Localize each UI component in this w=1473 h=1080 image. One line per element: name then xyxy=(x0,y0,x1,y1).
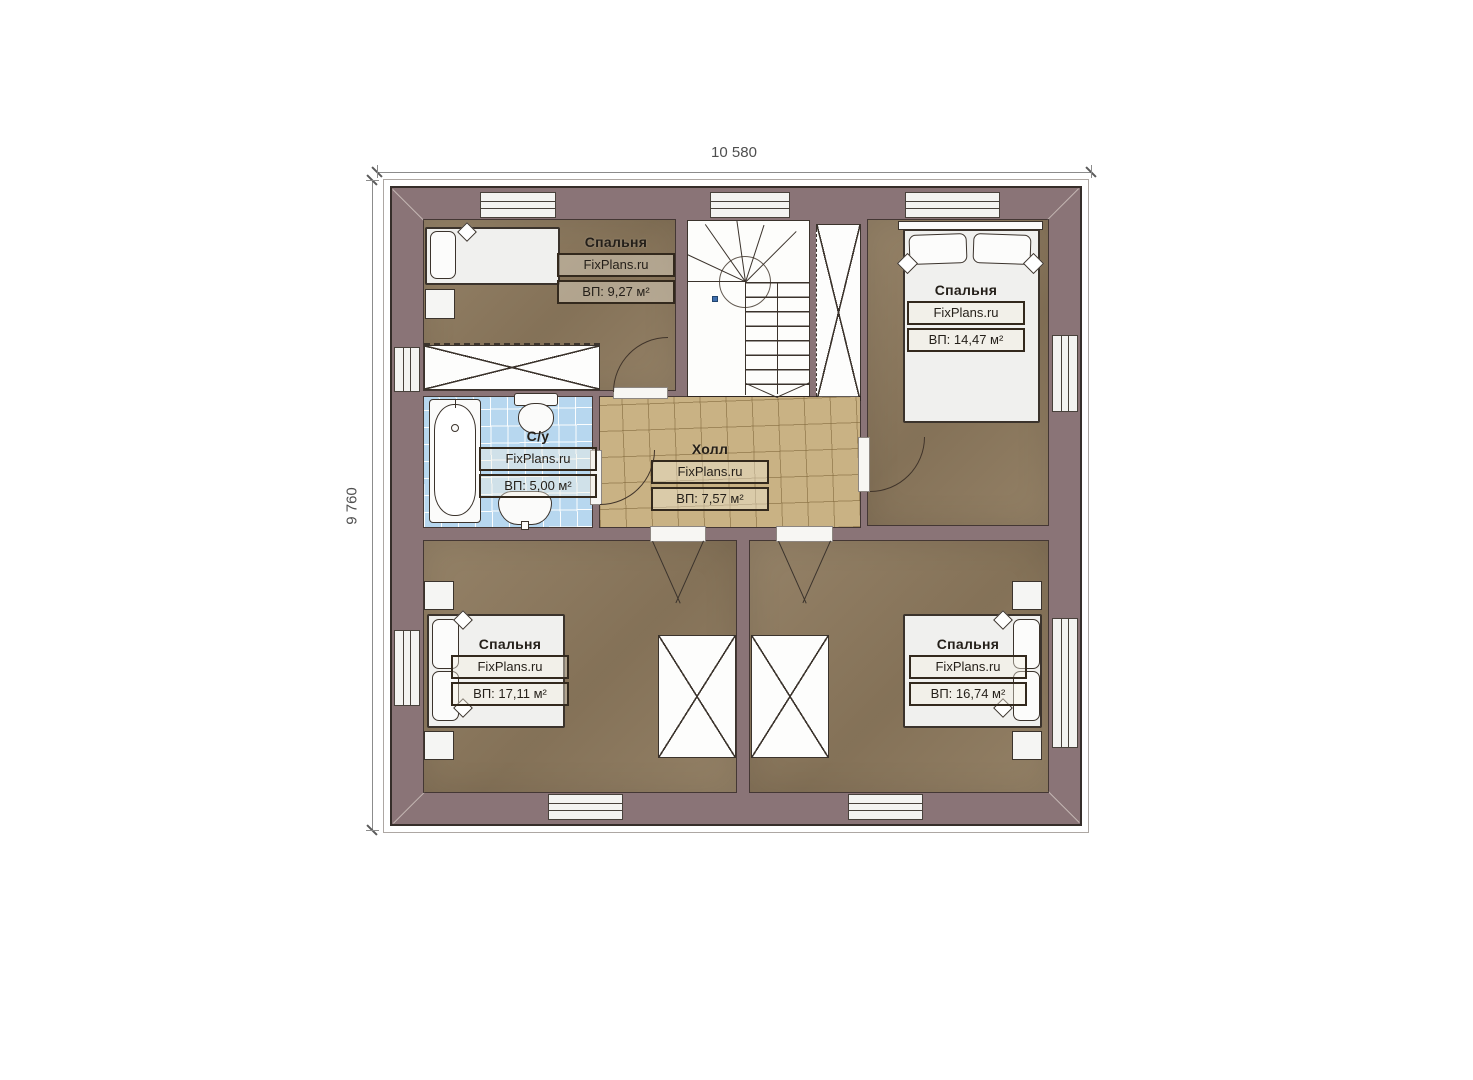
dimension-height-label: 9 760 xyxy=(344,487,361,525)
nightstand xyxy=(424,731,454,760)
stair-reference-dot xyxy=(712,296,718,302)
stair-winder-arc xyxy=(719,256,771,308)
room-name: Спальня xyxy=(937,636,1000,652)
nightstand xyxy=(1012,731,1042,760)
room-label-bedroom-top-right: Спальня FixPlans.ru ВП: 14,47 м² xyxy=(907,282,1025,352)
brand-box: FixPlans.ru xyxy=(909,655,1027,679)
room-name: С/у xyxy=(527,428,550,444)
brand-box: FixPlans.ru xyxy=(479,447,597,471)
dimension-end-mark xyxy=(366,830,379,831)
sink-faucet xyxy=(521,521,529,530)
area-box: ВП: 7,57 м² xyxy=(651,487,769,511)
pillow xyxy=(430,231,456,279)
window xyxy=(394,630,420,706)
room-label-bedroom-bottom-right: Спальня FixPlans.ru ВП: 16,74 м² xyxy=(909,636,1027,706)
bathtub-tap xyxy=(455,400,456,408)
window xyxy=(394,347,420,392)
window xyxy=(905,192,1000,218)
room-name: Спальня xyxy=(585,234,648,250)
brand-box: FixPlans.ru xyxy=(651,460,769,484)
window xyxy=(548,794,623,820)
dimension-width-label: 10 580 xyxy=(711,144,757,161)
room-label-bedroom-top-left: Спальня FixPlans.ru ВП: 9,27 м² xyxy=(557,234,675,304)
door-opening xyxy=(650,526,706,542)
nightstand xyxy=(1012,581,1042,610)
area-box: ВП: 14,47 м² xyxy=(907,328,1025,352)
area-box: ВП: 9,27 м² xyxy=(557,280,675,304)
room-name: Спальня xyxy=(479,636,542,652)
dimension-end-mark xyxy=(366,180,379,181)
wardrobe xyxy=(751,635,829,758)
dimension-end-mark xyxy=(377,165,378,178)
stair-center-line xyxy=(777,282,778,394)
pillow xyxy=(972,233,1031,265)
floor-plan-canvas: 10 580 9 760 xyxy=(0,0,1473,1080)
brand-box: FixPlans.ru xyxy=(907,301,1025,325)
room-name: Спальня xyxy=(935,282,998,298)
room-label-bedroom-bottom-left: Спальня FixPlans.ru ВП: 17,11 м² xyxy=(451,636,569,706)
window xyxy=(1052,618,1078,748)
window xyxy=(848,794,923,820)
dimension-end-mark xyxy=(1091,165,1092,178)
closet-shaft xyxy=(816,224,861,401)
room-name: Холл xyxy=(692,441,728,457)
door-opening xyxy=(776,526,833,542)
nightstand xyxy=(424,581,454,610)
brand-box: FixPlans.ru xyxy=(557,253,675,277)
wardrobe xyxy=(424,345,600,390)
wardrobe xyxy=(658,635,736,758)
window xyxy=(1052,335,1078,412)
window xyxy=(480,192,556,218)
bathtub-drain xyxy=(451,424,459,432)
room-label-hall: Холл FixPlans.ru ВП: 7,57 м² xyxy=(651,441,769,511)
dimension-height-line xyxy=(372,180,373,830)
area-box: ВП: 17,11 м² xyxy=(451,682,569,706)
brand-box: FixPlans.ru xyxy=(451,655,569,679)
pillow xyxy=(908,233,967,265)
dimension-width-line xyxy=(377,172,1091,173)
room-label-bathroom: С/у FixPlans.ru ВП: 5,00 м² xyxy=(479,428,597,498)
area-box: ВП: 16,74 м² xyxy=(909,682,1027,706)
nightstand xyxy=(425,289,455,319)
area-box: ВП: 5,00 м² xyxy=(479,474,597,498)
bathtub-inner xyxy=(434,404,476,516)
wardrobe-dashed-edge xyxy=(424,343,600,345)
door-opening xyxy=(858,437,870,492)
window xyxy=(710,192,790,218)
